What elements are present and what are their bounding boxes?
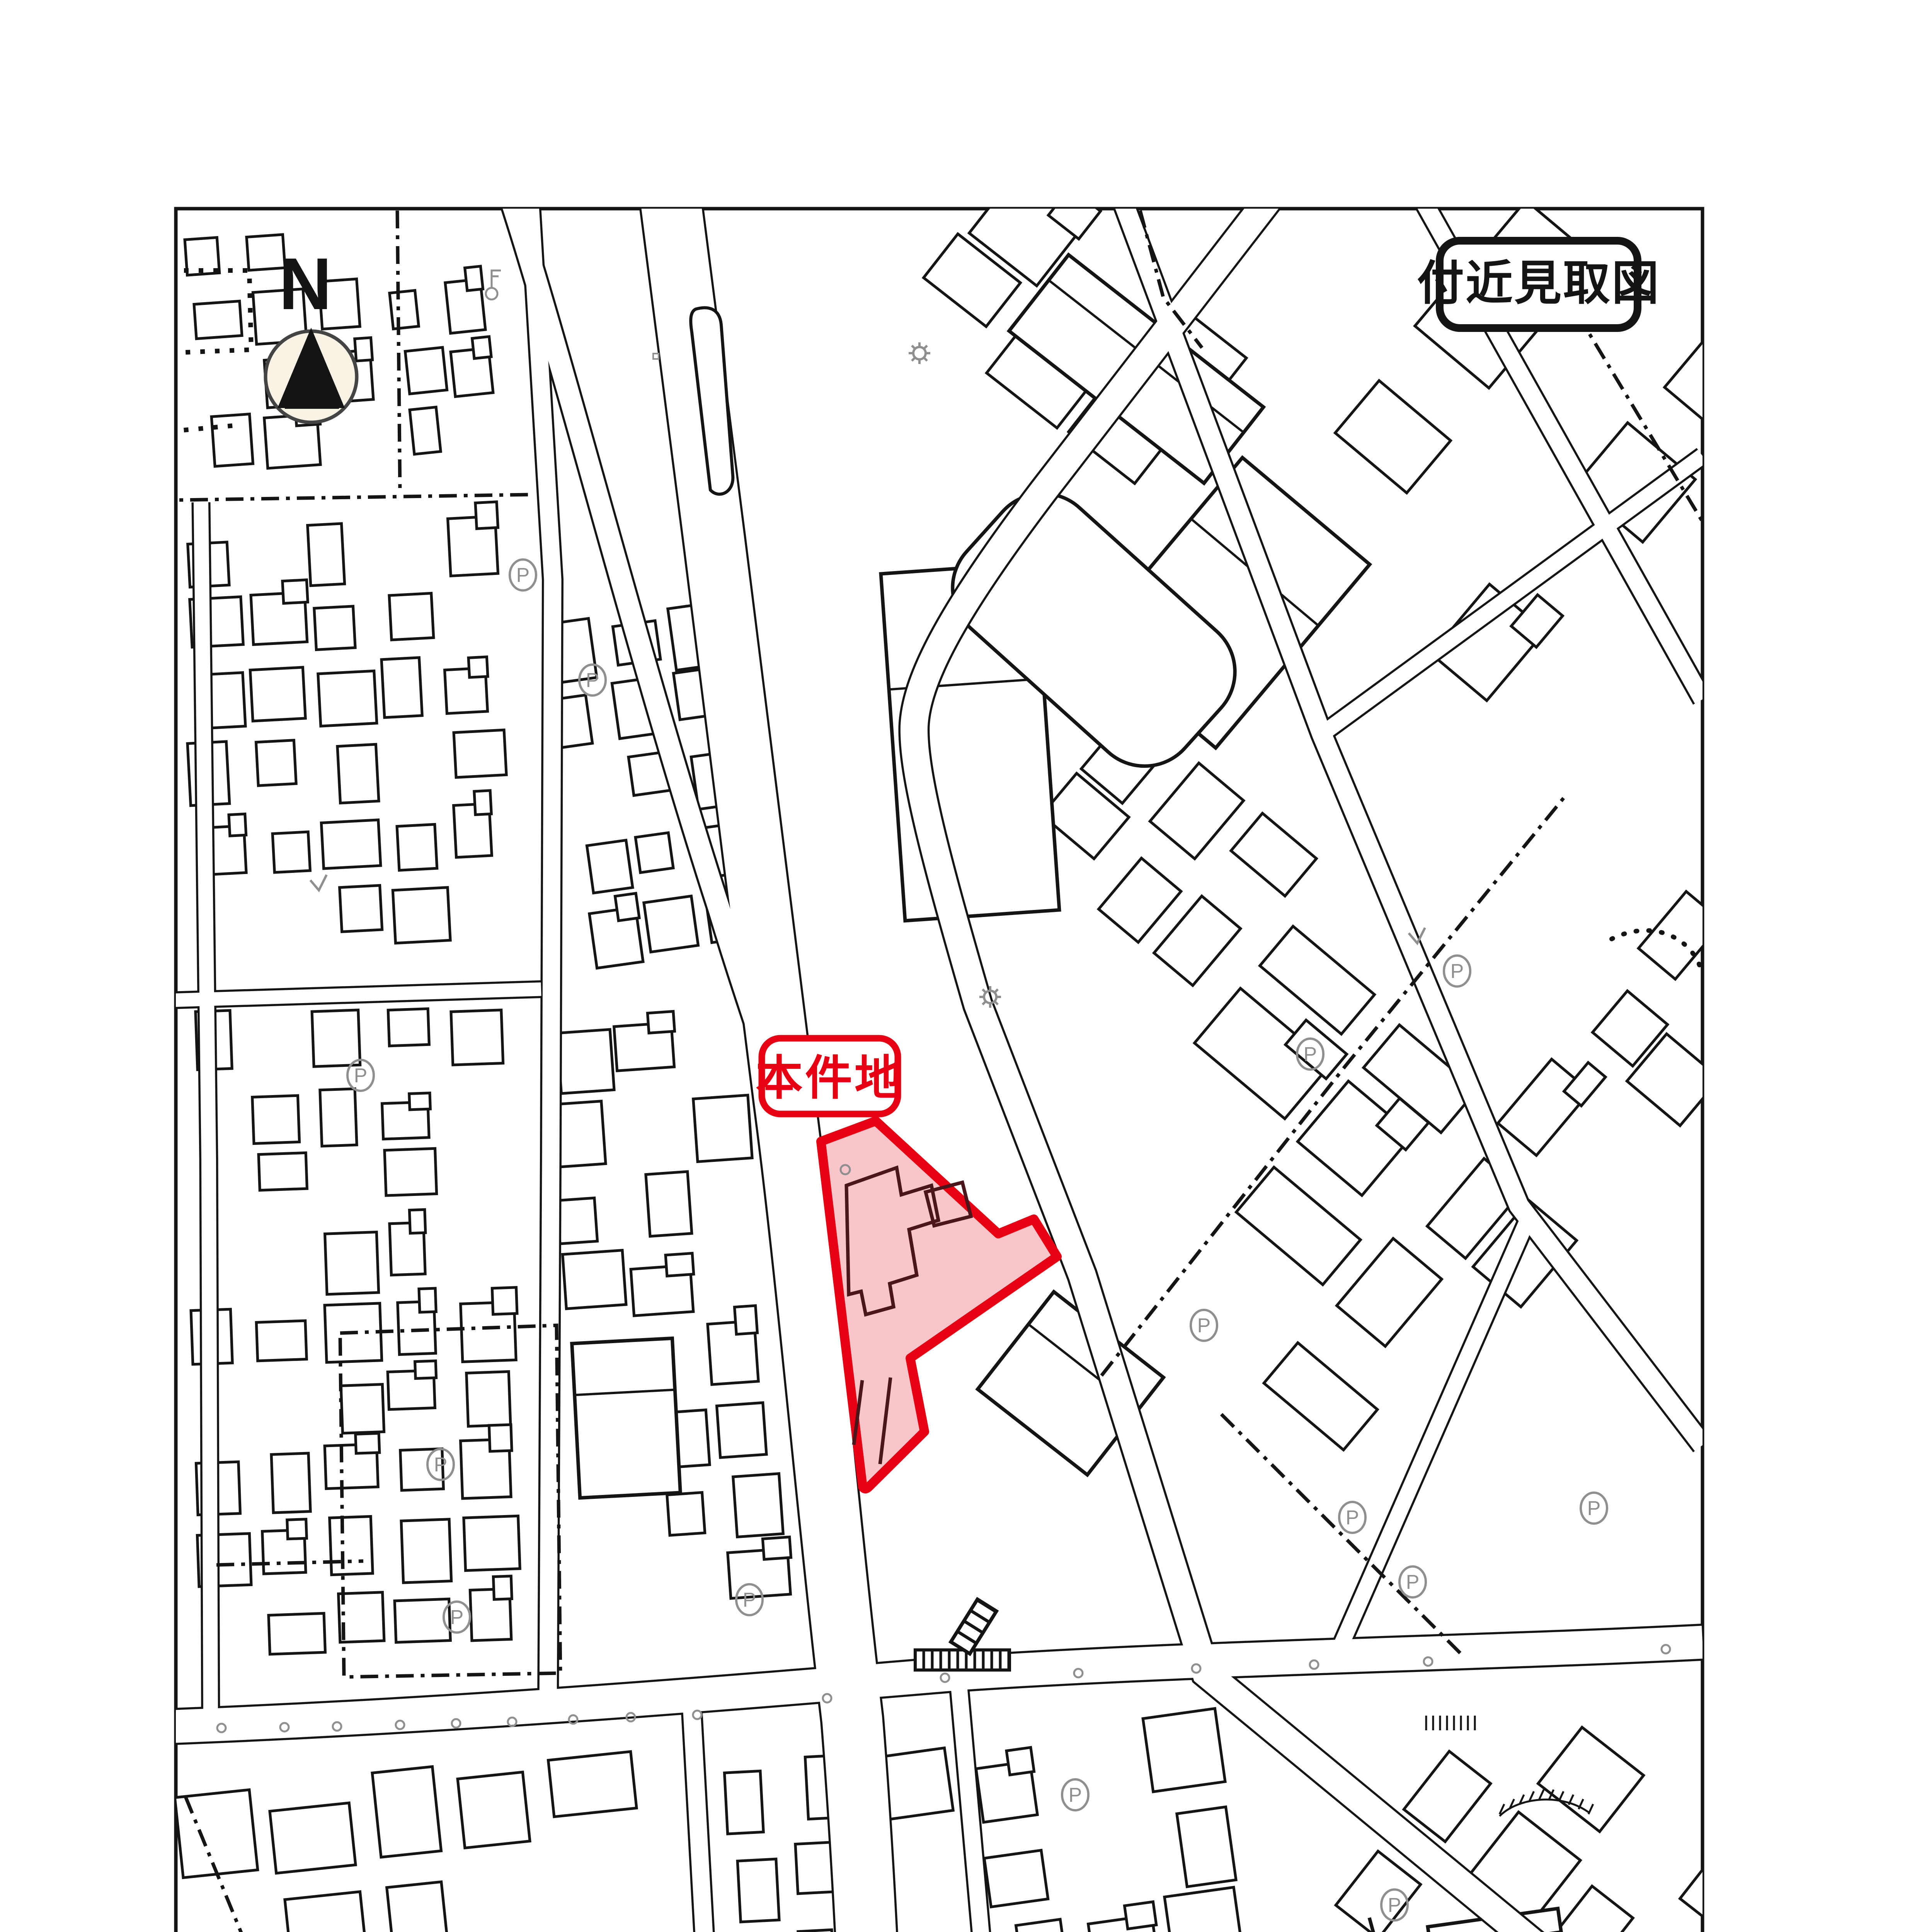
svg-text:P: P <box>1406 1571 1420 1594</box>
steps-symbol <box>915 1650 1010 1670</box>
svg-text:P: P <box>1069 1784 1082 1806</box>
svg-text:P: P <box>1451 960 1464 983</box>
subject-site-label: 本件地 <box>756 1038 904 1114</box>
svg-text:P: P <box>450 1606 464 1629</box>
svg-text:P: P <box>1346 1507 1359 1529</box>
subject-site-label-text: 本件地 <box>756 1052 904 1104</box>
svg-text:P: P <box>354 1065 368 1087</box>
map-title-box: 付近見取図 <box>1417 241 1660 328</box>
svg-text:P: P <box>434 1454 448 1476</box>
svg-text:P: P <box>516 564 530 587</box>
svg-text:P: P <box>1388 1894 1401 1917</box>
north-triangle-base <box>285 402 339 409</box>
vicinity-map-page: PPPPPPPPPPPPPPPP 本件地 N 付近見取図 縮尺 1：1500 1… <box>0 0 1917 1932</box>
svg-text:P: P <box>1197 1315 1211 1337</box>
svg-text:P: P <box>1304 1043 1317 1066</box>
vicinity-map-canvas: PPPPPPPPPPPPPPPP 本件地 N 付近見取図 縮尺 1：1500 1… <box>0 0 1917 1932</box>
map-title-text: 付近見取図 <box>1417 257 1660 310</box>
north-letter: N <box>279 243 332 325</box>
svg-text:P: P <box>586 669 599 692</box>
svg-text:P: P <box>1587 1497 1601 1520</box>
large-building <box>572 1338 681 1498</box>
svg-text:P: P <box>743 1589 756 1611</box>
